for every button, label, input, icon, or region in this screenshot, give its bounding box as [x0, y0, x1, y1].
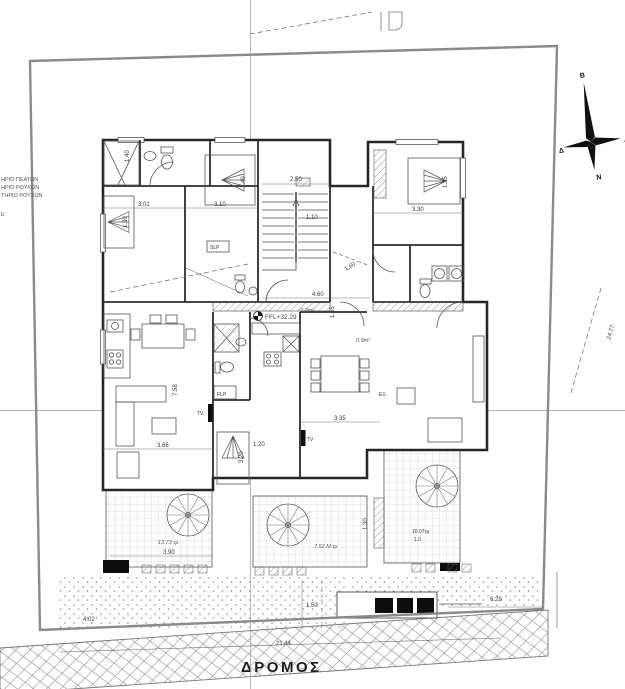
- ffl-label: FFL+32.29: [265, 314, 297, 321]
- compass-south-spike: [587, 142, 598, 171]
- road-length-dim: 21.44: [276, 640, 292, 647]
- dim-bathroom1: 1.40: [125, 150, 131, 162]
- balcony-right: [384, 446, 460, 563]
- balcony-right-area: 10.07τμ: [412, 529, 429, 535]
- site-dim-bottom-left: 4.02: [83, 617, 95, 623]
- bin-3: [417, 598, 434, 613]
- floor-plan-page: 21.44 ΔΡΟΜΟΣ 1.50 4.02 6.29 24.77 Β Ν: [0, 0, 625, 689]
- wall-hatch-band-right: [373, 302, 463, 311]
- dim-bed3: 1.35: [443, 176, 449, 188]
- floor-plan-drawing: 21.44 ΔΡΟΜΟΣ 1.50 4.02 6.29 24.77 Β Ν: [0, 0, 625, 689]
- bin-2: [397, 598, 413, 613]
- compass-north-label: Β: [579, 72, 585, 80]
- tv-right: [301, 430, 306, 446]
- compass-west-label: Δ: [558, 147, 564, 155]
- legend-line-4: Ε: [1, 212, 5, 218]
- area-wc: 0.9m²: [356, 338, 370, 344]
- level-marker: [254, 312, 263, 321]
- tv-left: [208, 404, 213, 422]
- slp-label: SLP: [210, 245, 220, 251]
- dim-studio-bed-width: 1.20: [253, 442, 265, 448]
- dashed-reference-right: [570, 288, 601, 396]
- area-hall: 2.2m²: [299, 308, 314, 314]
- dim-living1-depth: 7.58: [173, 384, 179, 396]
- dim-bed1: 1.30: [123, 216, 129, 228]
- dim-stairs-width: 2.50: [290, 177, 302, 183]
- tv-left-label: TV.: [197, 411, 204, 417]
- balcony-left-pier: [103, 560, 129, 573]
- dim-bed2: 1.40: [241, 176, 247, 188]
- dashed-reference-top: [250, 12, 372, 34]
- site-dim-right-side: 24.77: [606, 324, 616, 341]
- spiral-staircase-left: [167, 494, 209, 536]
- legend-line-2: ΗΡΙΟ ΡΟΥΧΩΝ: [1, 185, 39, 191]
- compass-west-spike: [563, 140, 592, 150]
- section-marker-symbol: [381, 12, 402, 31]
- legend-left: ΗΡΙΟ ΠΕΑΤΩΝ ΗΡΙΟ ΡΟΥΧΩΝ ΤΗΡΙΟ ΡΟΥΧΩΝ Ε: [1, 177, 43, 218]
- dim-bedroom1-width: 3.01: [138, 202, 150, 208]
- compass-east-spike: [591, 134, 622, 146]
- legend-line-3: ΤΗΡΙΟ ΡΟΥΧΩΝ: [1, 193, 43, 199]
- dim-living2-width: 3.35: [334, 416, 346, 422]
- bin-1: [375, 598, 393, 613]
- dim-hall-width: 4.60: [312, 292, 324, 298]
- compass-south-label: Ν: [596, 174, 602, 182]
- balcony-mid-depth-dim: 1.30: [363, 518, 369, 530]
- balcony-middle-area: 7.52 Μ.τμ: [314, 544, 337, 550]
- dim-bedroom2-width: 3.10: [214, 202, 226, 208]
- legend-line-1: ΗΡΙΟ ΠΕΑΤΩΝ: [1, 177, 38, 183]
- spiral-staircase-middle: [267, 504, 309, 546]
- dim-bedroom3-width: 3.30: [412, 207, 424, 213]
- balcony-divider-wall: [374, 498, 384, 548]
- dim-hall-depth: 1.55: [330, 306, 336, 318]
- compass-rose: Β Ν Δ Α: [550, 68, 625, 186]
- flp-label: FLP: [217, 392, 227, 398]
- tv-right-label: TV: [307, 437, 314, 443]
- dim-stairs-depth: 1.10: [306, 215, 318, 221]
- building: SLP FLP: [101, 138, 488, 491]
- dim-living1-width: 3.66: [157, 443, 169, 449]
- dim-studio-bed-length: 3.20: [239, 451, 245, 463]
- road-label: ΔΡΟΜΟΣ: [241, 659, 322, 676]
- closet-bedroom3: [374, 150, 386, 198]
- sidewalk-dim: 1.50: [306, 603, 318, 609]
- exit-label: ΕΞ.: [379, 392, 387, 398]
- spiral-staircase-right: [416, 465, 458, 507]
- compass-north-spike: [579, 82, 595, 143]
- balcony-right-note: 1.0: [414, 537, 421, 543]
- site-dim-bottom-right: 6.29: [490, 597, 502, 603]
- balcony-left-width-dim: 3.90: [163, 550, 175, 556]
- balcony-left-area: 13.73 τμ: [158, 540, 178, 546]
